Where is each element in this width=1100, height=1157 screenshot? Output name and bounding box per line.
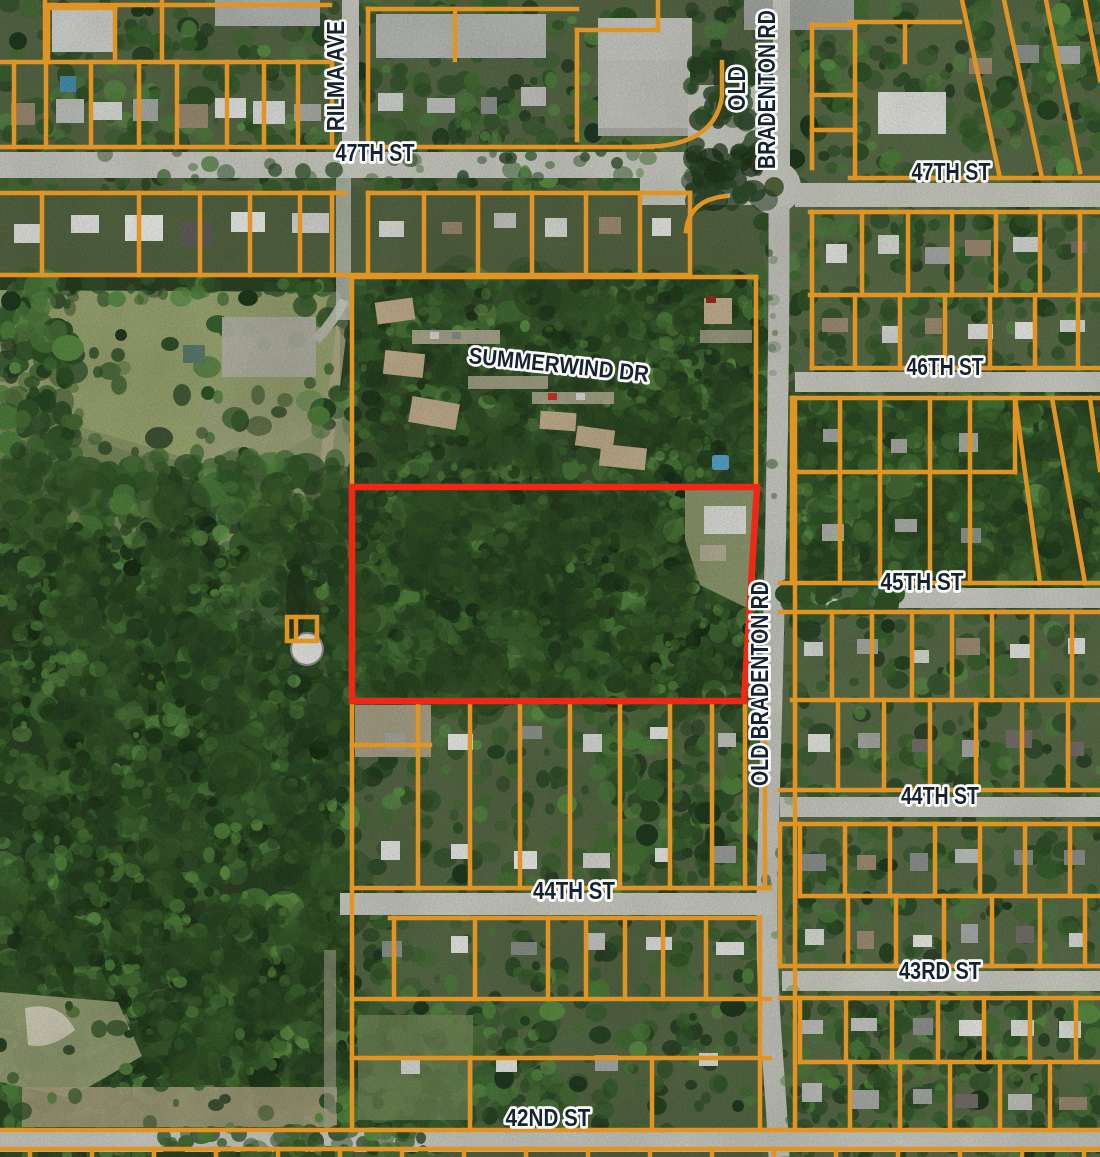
svg-text:BRADENTON RD: BRADENTON RD [754, 10, 780, 169]
svg-text:43RD ST: 43RD ST [899, 958, 981, 984]
svg-text:OLD: OLD [724, 66, 750, 111]
svg-text:OLD BRADENTON RD: OLD BRADENTON RD [747, 581, 773, 786]
svg-text:RILMA AVE: RILMA AVE [323, 21, 349, 131]
svg-text:42ND ST: 42ND ST [506, 1105, 591, 1131]
svg-text:44TH ST: 44TH ST [533, 878, 615, 904]
svg-text:45TH ST: 45TH ST [881, 569, 964, 595]
svg-text:47TH ST: 47TH ST [336, 140, 415, 166]
svg-text:44TH ST: 44TH ST [901, 783, 979, 809]
svg-text:46TH ST: 46TH ST [907, 354, 984, 380]
svg-text:47TH ST: 47TH ST [912, 159, 991, 185]
